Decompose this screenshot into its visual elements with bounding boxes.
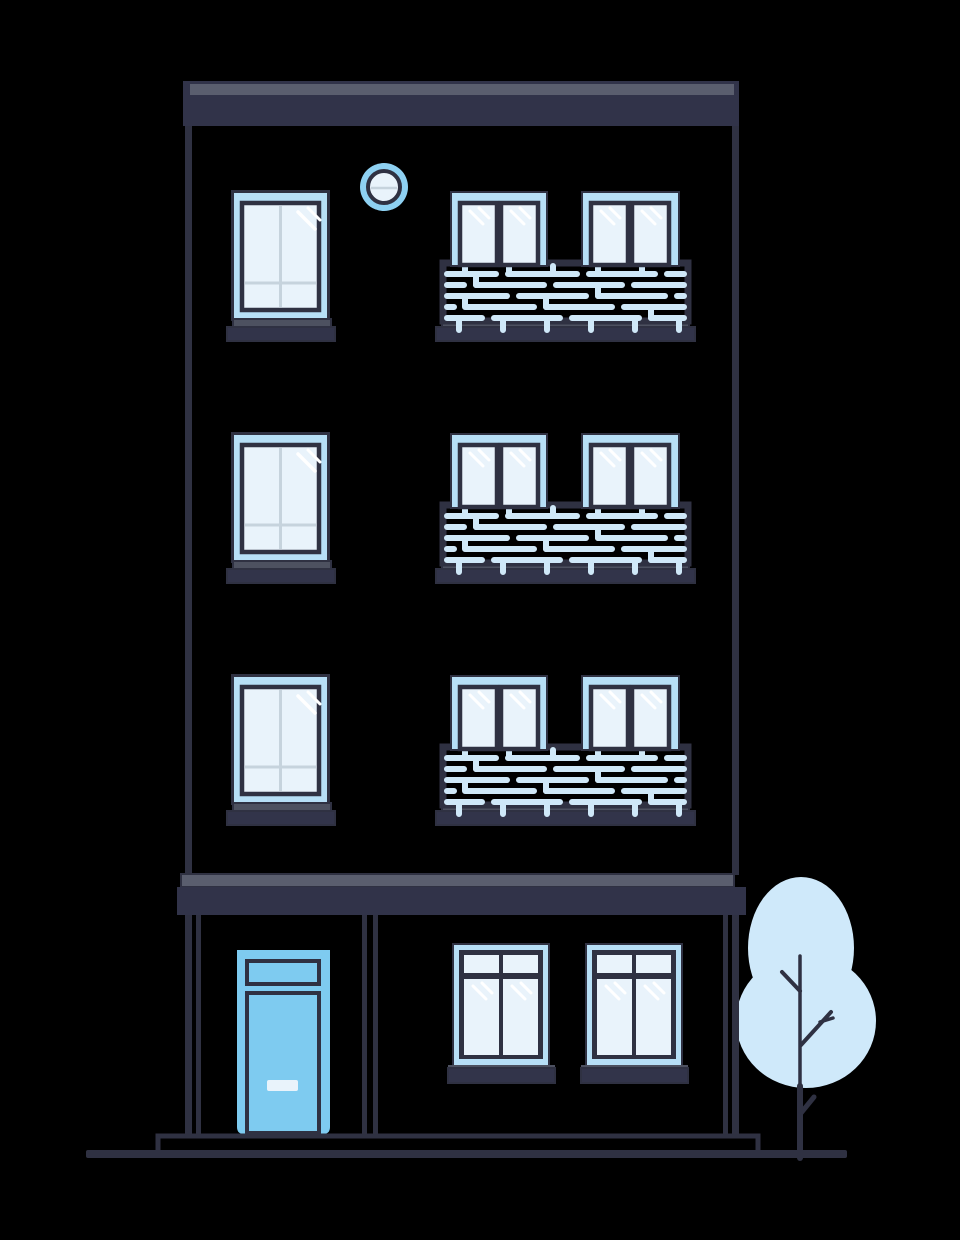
building xyxy=(158,81,758,1154)
ground-window-pane xyxy=(636,979,671,1055)
entrance-door xyxy=(237,950,330,1134)
shopfront-post xyxy=(185,915,192,1134)
porthole-window xyxy=(360,163,408,211)
ground-sill xyxy=(448,1068,555,1083)
ground-window-pane xyxy=(464,979,499,1055)
facade-left-edge xyxy=(185,126,192,875)
shopfront-post xyxy=(373,915,378,1134)
door-handle xyxy=(267,1080,298,1091)
shopfront-post xyxy=(732,915,739,1134)
ground-window-pane xyxy=(597,979,632,1055)
floor-1-unit xyxy=(227,190,695,341)
roof-cornice xyxy=(183,81,739,126)
ground-cornice xyxy=(177,874,746,915)
illustration-canvas xyxy=(0,0,960,1240)
roof-cornice-highlight xyxy=(190,84,734,95)
ground-window-pane xyxy=(503,979,538,1055)
tree-foliage-bottom xyxy=(736,954,876,1088)
ground-window-pane-top xyxy=(597,955,632,973)
door-leaf xyxy=(237,950,330,1134)
ground-window-pane-top xyxy=(503,955,538,973)
ground-cornice-highlight xyxy=(181,874,734,887)
ground-cornice-band xyxy=(177,887,746,915)
floor-2-unit xyxy=(227,432,695,583)
ground-window xyxy=(581,943,688,1083)
ground-line xyxy=(86,1150,847,1158)
ground-window-pane-top xyxy=(636,955,671,973)
ground-window xyxy=(448,943,555,1083)
floor-3-unit xyxy=(227,674,695,825)
ground-window-pane-top xyxy=(464,955,499,973)
building-illustration xyxy=(0,0,960,1240)
tree xyxy=(736,877,876,1158)
facade-right-edge xyxy=(732,126,739,875)
shopfront-post xyxy=(196,915,201,1134)
shopfront-post xyxy=(723,915,728,1134)
shopfront-post xyxy=(362,915,367,1134)
ground-sill xyxy=(581,1068,688,1083)
